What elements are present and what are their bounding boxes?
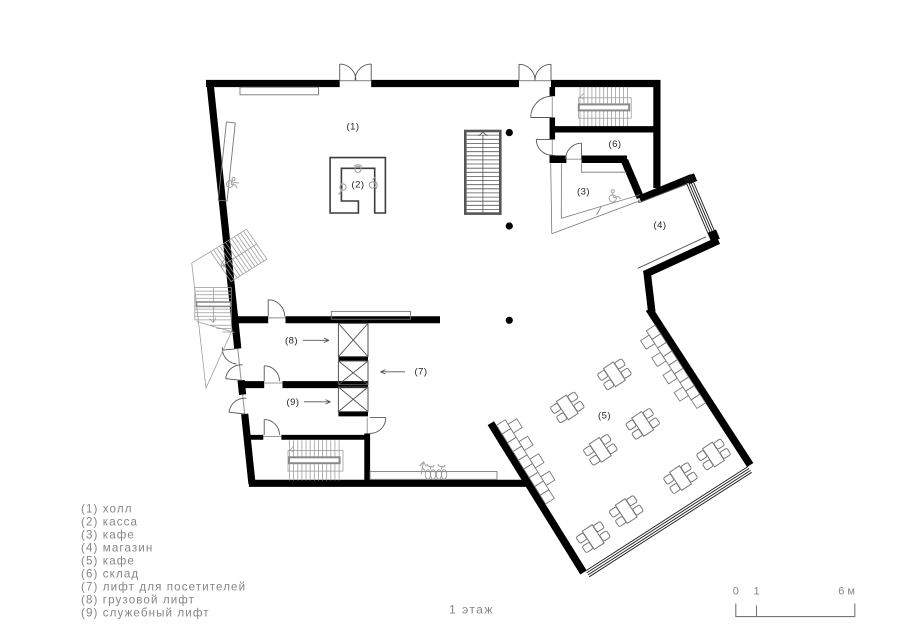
svg-text:(2): (2) bbox=[351, 180, 364, 191]
svg-text:(7) лифт для посетителей: (7) лифт для посетителей bbox=[81, 581, 246, 594]
svg-text:(6) склад: (6) склад bbox=[81, 568, 139, 581]
svg-text:(4) магазин: (4) магазин bbox=[81, 541, 153, 554]
svg-text:1: 1 bbox=[753, 586, 759, 598]
svg-text:(9) служебный лифт: (9) служебный лифт bbox=[81, 607, 210, 620]
svg-text:(5): (5) bbox=[598, 411, 611, 422]
svg-text:(3) кафе: (3) кафе bbox=[81, 528, 135, 541]
svg-text:(5) кафе: (5) кафе bbox=[81, 555, 135, 568]
svg-text:(7): (7) bbox=[414, 367, 427, 378]
svg-text:(8): (8) bbox=[285, 336, 298, 347]
svg-text:0: 0 bbox=[733, 586, 739, 598]
svg-text:(8) грузовой лифт: (8) грузовой лифт bbox=[81, 594, 195, 607]
svg-text:(3): (3) bbox=[577, 187, 590, 198]
svg-text:(6): (6) bbox=[608, 139, 621, 150]
svg-text:1 этаж: 1 этаж bbox=[449, 603, 494, 617]
svg-text:6 м: 6 м bbox=[838, 586, 855, 598]
svg-text:(4): (4) bbox=[653, 220, 666, 231]
svg-text:(2) касса: (2) касса bbox=[81, 515, 138, 528]
svg-text:(9): (9) bbox=[286, 397, 299, 408]
svg-text:(1): (1) bbox=[346, 122, 359, 133]
svg-text:(1) холл: (1) холл bbox=[81, 502, 133, 515]
